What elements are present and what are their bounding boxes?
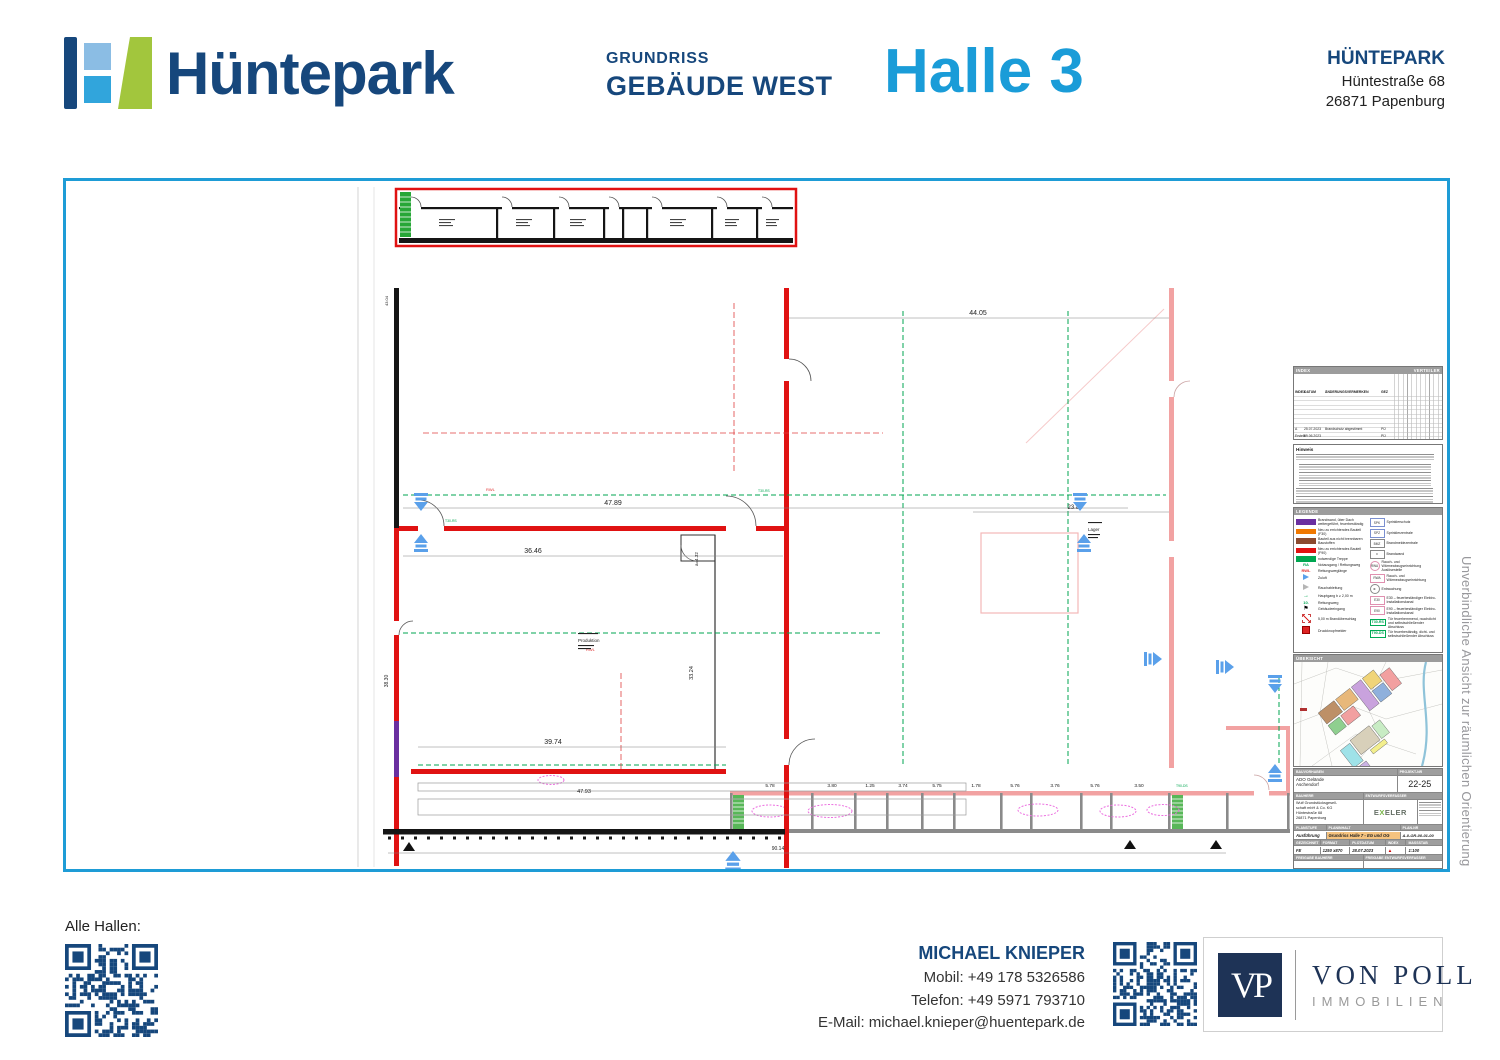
swatch-f90: [1296, 548, 1316, 554]
approval-designer-empty: [1364, 861, 1442, 869]
svg-text:5.75: 5.75: [932, 783, 942, 789]
svg-text:T30-RS: T30-RS: [758, 489, 770, 493]
svg-text:3.80: 3.80: [827, 783, 837, 789]
smoke-vent-icon: ⊗: [1370, 584, 1380, 594]
qr-code-alle-hallen: [65, 944, 158, 1042]
main-aisle-icon: →: [1296, 593, 1316, 599]
svg-text:43.04: 43.04: [384, 295, 389, 306]
t30-rs-chip: T30-RS: [1370, 619, 1386, 627]
contact-mobile: Mobil: +49 178 5326586: [818, 967, 1085, 990]
swatch-stair: [1296, 556, 1316, 562]
project-number: 22-25: [1398, 776, 1442, 792]
revision-clouds: [538, 776, 1179, 818]
svg-text:Lager: Lager: [1088, 527, 1100, 532]
svg-text:47.93: 47.93: [577, 789, 591, 795]
site-map: [1294, 662, 1442, 766]
swatch-firewall: [1296, 519, 1316, 525]
e90-icon: E90: [1370, 606, 1385, 615]
door-arcs-hall: [399, 359, 815, 765]
fire-jump-icon: [1296, 614, 1316, 625]
dock-strips: [418, 783, 966, 815]
legend: LEGENDE Brandwand, über Dach weitergefüh…: [1293, 507, 1443, 653]
svg-text:39.74: 39.74: [544, 739, 562, 746]
index-marker: ▲: [1386, 847, 1407, 854]
upper-room-strip: [396, 189, 796, 246]
client-address: Wulf Grundstücksgesell- schaft mbH & Co.…: [1294, 800, 1364, 824]
alle-hallen-label: Alle Hallen:: [65, 918, 141, 935]
svg-text:44.05: 44.05: [969, 310, 987, 317]
site-overview: ÜBERSICHT: [1293, 654, 1443, 767]
address-block: HÜNTEPARK Hüntestraße 68 26871 Papenburg: [1326, 46, 1445, 112]
svg-text:47.89: 47.89: [604, 500, 622, 507]
swatch-f30: [1296, 529, 1316, 535]
supply-air-icon: [1296, 574, 1316, 582]
svg-text:a=4.32: a=4.32: [694, 552, 699, 566]
svg-text:3.50: 3.50: [1134, 783, 1144, 789]
spz-icon: SPZ: [1370, 529, 1385, 538]
notes-block: Hinweis: [1293, 444, 1443, 504]
format-value: 1250 x870: [1321, 847, 1351, 854]
bmz-icon: BMZ: [1370, 539, 1385, 548]
contact-name: MICHAEL KNIEPER: [818, 940, 1085, 967]
legend-right-column: SPKSprinklerschutz SPZSprinklerzentrale …: [1370, 517, 1441, 640]
new-f90-walls: [394, 288, 815, 868]
svg-text:T90-DS: T90-DS: [1176, 784, 1188, 788]
stair-upper: [400, 192, 411, 237]
svg-text:33.24: 33.24: [689, 666, 695, 680]
swatch-noncombustible: [1296, 538, 1316, 544]
survey-triangles: [403, 840, 1222, 851]
vonpoll-initials: VP: [1218, 953, 1282, 1017]
svg-text:36.46: 36.46: [524, 548, 542, 555]
svg-text:1.25: 1.25: [865, 783, 875, 789]
rwa-icon: RWA: [1370, 574, 1385, 583]
designer-logo: EXELER: [1364, 800, 1419, 824]
doc-type: GRUNDRISS: [606, 50, 709, 68]
building-title: GEBÄUDE WEST: [606, 71, 833, 102]
disclaimer-vertical: Unverbindliche Ansicht zur räumlichen Or…: [1459, 556, 1474, 901]
entrance-flag-icon: ⚑: [1296, 606, 1316, 612]
contact-block: MICHAEL KNIEPER Mobil: +49 178 5326586 T…: [818, 940, 1085, 1035]
revision-table: INDEX VERTEILER INDEX DATUM ÄNDERUNGSVER…: [1293, 366, 1443, 440]
vonpoll-wordmark: VON POLL IMMOBILIEN: [1312, 960, 1477, 1009]
huentepark-logo-icon: [64, 36, 152, 110]
scale-value: 1:100: [1406, 847, 1442, 854]
spk-icon: SPK: [1370, 518, 1385, 527]
contact-email: E-Mail: michael.knieper@huentepark.de: [818, 1012, 1085, 1035]
strip-dimension-labels: 5.78 3.80 1.25 3.74 5.75 1.78 5.76 3.76 …: [765, 783, 1144, 789]
notes-text-lines: [1299, 464, 1431, 486]
firewall-purple: [394, 721, 399, 777]
svg-text:3.76: 3.76: [1050, 783, 1060, 789]
svg-text:90.14: 90.14: [772, 846, 785, 852]
title-block: BAUVORHABEN PROJEKT-NR ADO Gelände Asche…: [1293, 768, 1443, 869]
plan-number: A-0-GR-00-01-00: [1401, 832, 1442, 839]
company-name: HÜNTEPARK: [1326, 46, 1445, 72]
svg-text:Produktion: Produktion: [578, 638, 600, 643]
brand-name: Hüntepark: [166, 39, 454, 108]
airflow-arrows: [414, 493, 1282, 869]
smoke-extract-icon: [1296, 584, 1316, 592]
revision-column-headers: INDEX DATUM ÄNDERUNGSVERMERKEN GEZ: [1294, 390, 1394, 394]
rwl-mark-2: RWL: [586, 647, 596, 652]
notes-text-lines: [1296, 454, 1434, 462]
rwa-trigger-icon: RWA: [1370, 561, 1380, 571]
city: 26871 Papenburg: [1326, 92, 1445, 112]
svg-text:T30-RS: T30-RS: [445, 519, 457, 523]
escape-route-icon: 10.: [1296, 601, 1316, 605]
legend-left-column: Brandwand, über Dach weitergeführt, feue…: [1296, 517, 1367, 640]
notes-text-lines: [1296, 488, 1433, 505]
page: Hüntepark GRUNDRISS GEBÄUDE WEST Halle 3…: [0, 0, 1500, 1060]
brand-logo: Hüntepark: [64, 36, 454, 110]
svg-text:5.76: 5.76: [1010, 783, 1020, 789]
site-overview-header: ÜBERSICHT: [1294, 655, 1442, 662]
e30-icon: E30: [1370, 596, 1385, 605]
contact-phone: Telefon: +49 5971 793710: [818, 990, 1085, 1013]
legend-header: LEGENDE: [1294, 508, 1442, 515]
existing-walls: [730, 288, 1290, 796]
black-walls: [383, 288, 785, 838]
approval-client-empty: [1294, 861, 1364, 869]
t90-ds-chip: T90-DS: [1370, 630, 1386, 638]
vonpoll-logo: VP VON POLL IMMOBILIEN: [1203, 937, 1443, 1032]
floorplan-drawing: RWL RWL 47.89 44.05 36.46 23.86 39.74 47…: [66, 181, 1447, 869]
call-point-icon: [1296, 626, 1316, 636]
plan-content: Grundriss Halle 7 - EG und OG: [1327, 832, 1401, 839]
escape-routes: [403, 311, 1279, 767]
svg-text:5.78: 5.78: [765, 783, 775, 789]
stairs-bottom: [733, 795, 1183, 829]
project-name: ADO Gelände Aschendorf: [1294, 776, 1398, 792]
room-label-lager: Lager: [1088, 522, 1102, 538]
rwl-icon: RWL: [1296, 569, 1316, 573]
rwl-lines: [423, 303, 883, 769]
dimension-labels: 47.89 44.05 36.46 23.86 39.74 47.93 33.2…: [384, 295, 1083, 852]
rwl-mark-1: RWL: [486, 487, 496, 492]
svg-text:38.30: 38.30: [384, 675, 390, 688]
firewall-icon: ≡: [1370, 550, 1385, 559]
plan-stage: Ausführung: [1294, 832, 1327, 839]
designer-contact-lines: [1418, 800, 1442, 824]
notes-title: Hinweis: [1296, 447, 1440, 452]
revision-row-a: A 25.07.2023 Brandschutz abgestimmt PÜ: [1294, 427, 1443, 431]
drawn-by: FE: [1294, 847, 1321, 854]
plot-date: 28.07.2023: [1350, 847, 1386, 854]
vonpoll-divider: [1295, 950, 1296, 1020]
hall-title: Halle 3: [884, 36, 1084, 107]
svg-text:1.78: 1.78: [971, 783, 981, 789]
revision-row-created: Erstellt: 09.06.2023 PÜ: [1294, 434, 1443, 438]
qr-code-contact: [1113, 942, 1197, 1031]
street: Hüntestraße 68: [1326, 72, 1445, 92]
plan-frame: RWL RWL 47.89 44.05 36.46 23.86 39.74 47…: [63, 178, 1450, 872]
exit-route-icon: RA: [1296, 563, 1316, 567]
svg-text:5.76: 5.76: [1090, 783, 1100, 789]
svg-text:3.74: 3.74: [898, 783, 908, 789]
revision-table-header: INDEX VERTEILER: [1294, 367, 1442, 374]
